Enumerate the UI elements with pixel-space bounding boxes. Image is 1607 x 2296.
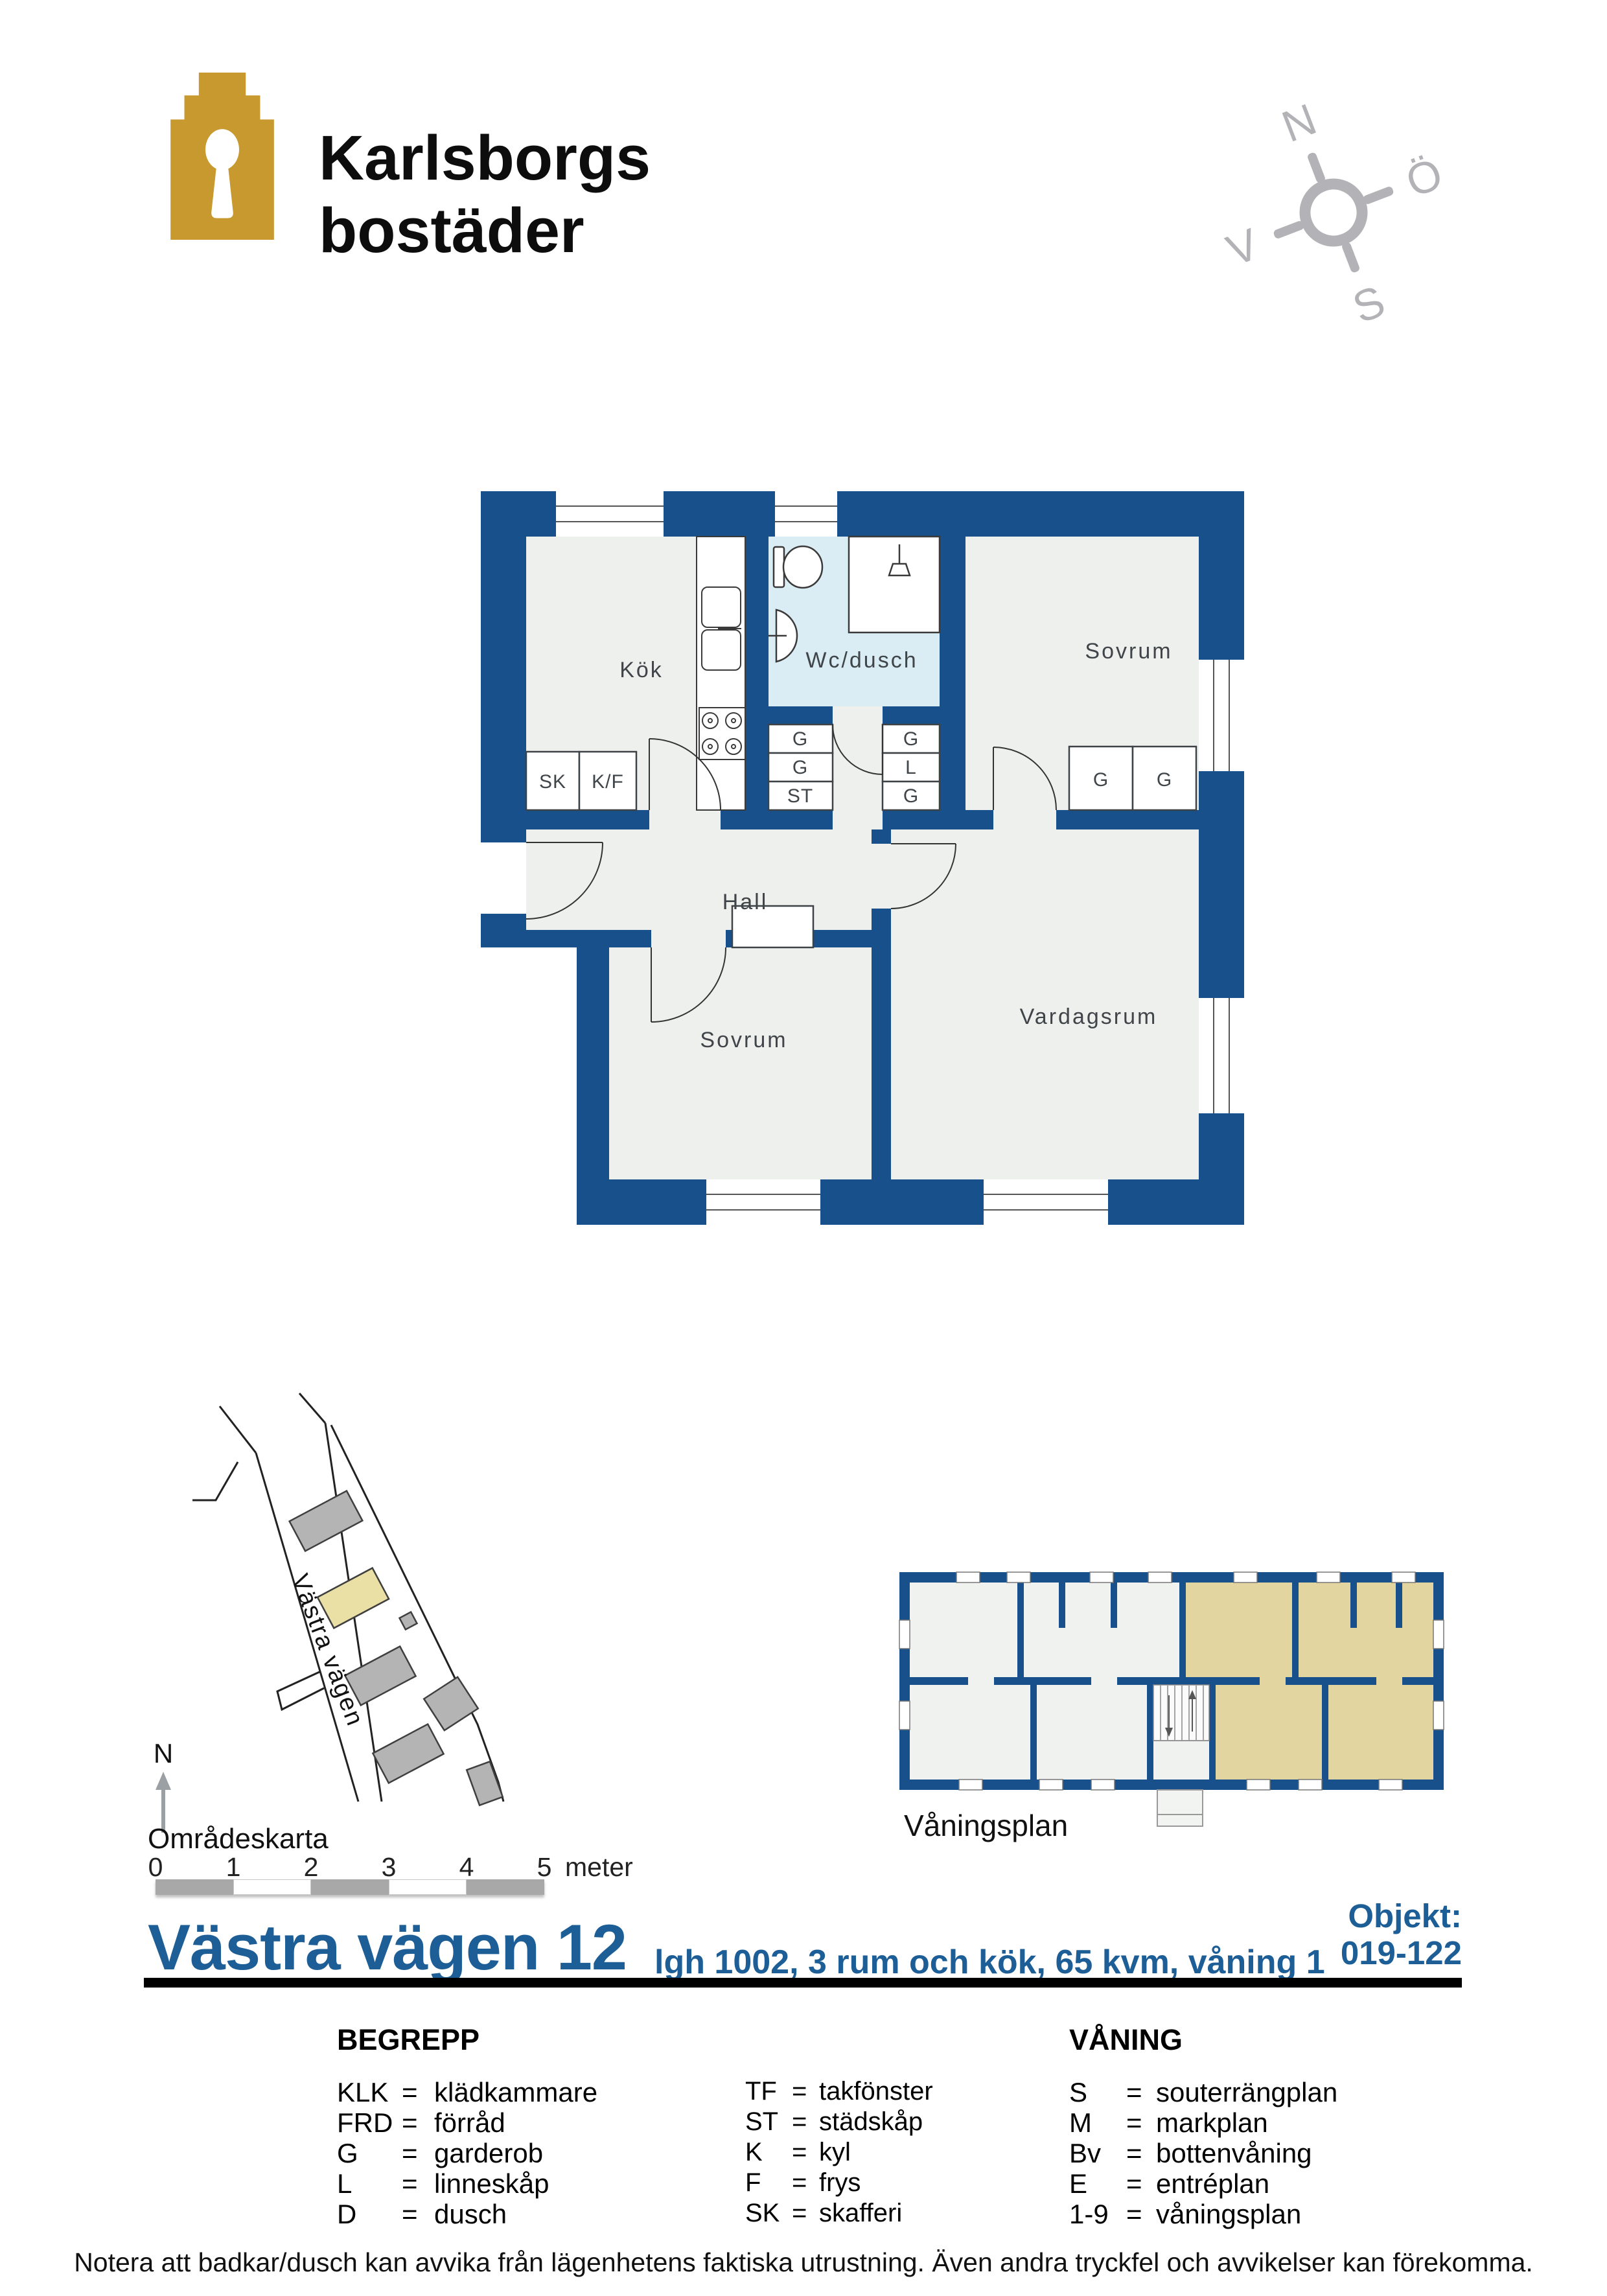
legend-abbr: S [1069, 2077, 1126, 2108]
counter [697, 537, 745, 810]
legend-abbr: G [337, 2138, 402, 2169]
shower-area [849, 537, 940, 632]
label-kitchen: Kök [619, 658, 664, 682]
label-g: G [792, 728, 808, 750]
legend-equals: = [402, 2168, 434, 2199]
opening [651, 930, 726, 947]
burner-dot [708, 719, 712, 723]
legend-term: markplan [1156, 2107, 1268, 2139]
legend-row: TF = takfönster [745, 2077, 933, 2107]
legend-term: förråd [434, 2107, 505, 2139]
legend-begrepp-header: BEGREPP [337, 2023, 480, 2057]
legend-row: Bv = bottenvåning [1069, 2138, 1337, 2168]
area-map: Västra vägen N Områdeskarta [130, 1387, 868, 1879]
wall-segment [883, 706, 940, 725]
label-hall: Hall [723, 890, 769, 914]
legend-abbr: M [1069, 2107, 1126, 2139]
road-line [277, 1672, 324, 1710]
legend-row: SK = skafferi [745, 2199, 933, 2229]
scalebar-unit: meter [565, 1852, 633, 1883]
label-l: L [905, 757, 917, 778]
legend-equals: = [402, 2138, 434, 2169]
legend-row: K = kyl [745, 2138, 933, 2168]
wall-segment [1286, 1677, 1376, 1685]
legend-term: klädkammare [434, 2077, 597, 2108]
scalebar [156, 1879, 544, 1895]
apartment-floor-plan: Kök Wc/dusch Sovrum Hall Sovrum Vardagsr… [481, 491, 1244, 1225]
legend-begrepp-col1: KLK = klädkammare FRD = förråd G = garde… [337, 2077, 597, 2229]
legend-term: dusch [434, 2199, 507, 2230]
legend-row: ST = städskåp [745, 2107, 933, 2138]
window [706, 1179, 820, 1225]
map-building [399, 1612, 417, 1629]
shower-head-icon [889, 564, 910, 575]
kitchen-counter [697, 537, 745, 810]
wall-segment [526, 930, 651, 947]
legend-abbr: ST [745, 2107, 792, 2137]
wall-segment [940, 537, 965, 829]
north-arrow-head [156, 1772, 171, 1790]
legend-equals: = [792, 2077, 819, 2106]
legend-term: bottenvåning [1156, 2138, 1312, 2169]
scalebar-segment [389, 1879, 467, 1895]
wall-segment [1350, 1583, 1357, 1628]
opening [872, 844, 891, 909]
map-caption: Områdeskarta [148, 1823, 329, 1855]
legend-abbr: F [745, 2168, 792, 2197]
label-g: G [792, 757, 808, 778]
legend-term: entréplan [1156, 2168, 1269, 2199]
legend-abbr: E [1069, 2168, 1126, 2199]
label-kf: K/F [592, 771, 624, 793]
legend-term: linneskåp [434, 2168, 549, 2199]
window [775, 491, 837, 537]
compass-spoke-s [1341, 241, 1360, 273]
legend-equals: = [1126, 2077, 1156, 2108]
opening [833, 706, 883, 725]
legend-equals: = [1126, 2199, 1156, 2230]
map-building [424, 1677, 478, 1730]
label-bedroom-low: Sovrum [700, 1028, 787, 1052]
wall-segment [1056, 810, 1199, 829]
legend-term: souterrängplan [1156, 2077, 1337, 2108]
object-id-block: Objekt: 019-122 [1341, 1897, 1462, 1971]
label-sk: SK [539, 771, 566, 793]
legend-abbr: K [745, 2138, 792, 2167]
compass-label-south: S [1347, 276, 1392, 332]
stair-flights [1153, 1685, 1209, 1741]
scalebar-tick: 0 [117, 1852, 194, 1883]
legend-term: skafferi [819, 2199, 902, 2228]
wall-segment [1179, 1583, 1186, 1677]
legend-row: 1-9 = våningsplan [1069, 2199, 1337, 2229]
wall-segment [526, 810, 649, 829]
divider-rule [144, 1978, 1462, 1988]
legend-row: D = dusch [337, 2199, 597, 2229]
legend-begrepp-col2: TF = takfönster ST = städskåp K = kyl F … [745, 2077, 933, 2229]
compass-label-north: N [1275, 95, 1323, 152]
window [984, 1179, 1108, 1225]
label-g: G [1157, 769, 1172, 791]
legend-row: L = linneskåp [337, 2168, 597, 2199]
wall-segment [872, 909, 891, 1225]
legend-equals: = [1126, 2107, 1156, 2139]
legend-abbr: TF [745, 2077, 792, 2106]
legend-term: städskåp [819, 2107, 923, 2137]
wall-segment [1117, 1677, 1260, 1685]
legend-equals: = [1126, 2168, 1156, 2199]
scalebar-tick: 3 [350, 1852, 428, 1883]
wall-segment [1292, 1583, 1299, 1677]
toilet-tank [774, 547, 784, 587]
scalebar-ticks: 012345 [117, 1852, 583, 1883]
wall-segment [872, 829, 891, 844]
legend-equals: = [402, 2199, 434, 2230]
wall-segment [883, 810, 993, 829]
legend-equals: = [792, 2138, 819, 2167]
legend-vaning-header: VÅNING [1069, 2023, 1183, 2057]
legend-equals: = [792, 2168, 819, 2197]
scalebar-segment [467, 1879, 544, 1895]
road-line [299, 1393, 325, 1423]
label-g: G [903, 785, 919, 807]
scalebar-segment [311, 1879, 389, 1895]
page-title-address: Västra vägen 12 [148, 1910, 627, 1984]
legend-equals: = [792, 2199, 819, 2228]
room-bedroom-low [609, 947, 872, 1179]
label-g: G [903, 728, 919, 750]
compass-spoke-n [1306, 152, 1326, 184]
burner-dot [732, 719, 735, 723]
sink-basin [702, 587, 741, 627]
wall-segment [1396, 1583, 1402, 1628]
legend-term: frys [819, 2168, 861, 2197]
object-number: 019-122 [1341, 1934, 1462, 1971]
compass-rose-icon: N Ö S V [1197, 76, 1470, 349]
legend-row: G = garderob [337, 2138, 597, 2168]
label-living: Vardagsrum [1020, 1004, 1158, 1029]
legend-abbr: Bv [1069, 2138, 1126, 2169]
wall-segment [1017, 1583, 1024, 1677]
burner-dot [708, 745, 712, 748]
wall-segment [1402, 1677, 1433, 1685]
compass-spoke-w [1273, 220, 1305, 239]
wall-segment [1059, 1583, 1065, 1628]
road-line [220, 1406, 256, 1453]
legend-equals: = [792, 2107, 819, 2137]
map-building [373, 1724, 443, 1783]
scalebar-segment [156, 1879, 233, 1895]
legend-abbr: KLK [337, 2077, 402, 2108]
compass-ring [1297, 176, 1370, 249]
wall-segment [1030, 1685, 1037, 1780]
legend-row: F = frys [745, 2168, 933, 2199]
map-north-label: N [154, 1738, 173, 1768]
page-title-details: lgh 1002, 3 rum och kök, 65 kvm, våning … [654, 1943, 1325, 1982]
wall-segment [1209, 1685, 1216, 1780]
scalebar-tick: 2 [272, 1852, 350, 1883]
label-bedroom-top: Sovrum [1085, 639, 1172, 664]
entrance-porch [1157, 1790, 1203, 1826]
sink-basin [702, 630, 741, 670]
brand-name: Karlsborgs bostäder [319, 122, 651, 267]
legend-abbr: SK [745, 2199, 792, 2228]
building-overview-plan [897, 1568, 1454, 1847]
label-g: G [1093, 769, 1109, 791]
scalebar-tick: 1 [194, 1852, 272, 1883]
legend-row: FRD = förråd [337, 2107, 597, 2138]
wall-segment [769, 706, 833, 725]
label-wc: Wc/dusch [805, 648, 918, 673]
window [556, 491, 664, 537]
logo-keyhole-icon [162, 73, 283, 240]
map-building [467, 1761, 503, 1805]
brand-line2: bostäder [319, 194, 651, 267]
legend-row: S = souterrängplan [1069, 2077, 1337, 2107]
legend-row: M = markplan [1069, 2107, 1337, 2138]
burner-dot [732, 745, 735, 748]
legend-vaning-col: S = souterrängplan M = markplan Bv = bot… [1069, 2077, 1337, 2229]
legend-term: takfönster [819, 2077, 933, 2106]
legend-term: våningsplan [1156, 2199, 1301, 2230]
overview-caption: Våningsplan [904, 1808, 1068, 1843]
scalebar-segment [233, 1879, 311, 1895]
legend-term: garderob [434, 2138, 543, 2169]
legend-abbr: FRD [337, 2107, 402, 2139]
compass-label-east: Ö [1400, 148, 1450, 207]
legend-equals: = [402, 2077, 434, 2108]
object-label: Objekt: [1341, 1897, 1462, 1934]
map-building [290, 1491, 363, 1551]
scalebar-tick: 4 [428, 1852, 505, 1883]
legend-row: KLK = klädkammare [337, 2077, 597, 2107]
legend-row: E = entréplan [1069, 2168, 1337, 2199]
toilet-bowl [783, 546, 822, 588]
legend-abbr: 1-9 [1069, 2199, 1126, 2230]
wall-segment [910, 1677, 968, 1685]
legend-abbr: D [337, 2199, 402, 2230]
room-hall [526, 829, 872, 930]
legend-equals: = [402, 2107, 434, 2139]
opening [833, 810, 883, 829]
wall-segment [994, 1677, 1091, 1685]
compass-spoke-e [1362, 185, 1394, 205]
legend-abbr: L [337, 2168, 402, 2199]
compass-label-west: V [1220, 219, 1266, 275]
legend-equals: = [1126, 2138, 1156, 2169]
wall-segment [1111, 1583, 1117, 1628]
window [1199, 998, 1244, 1113]
window [1199, 660, 1244, 771]
entrance-opening [481, 842, 526, 914]
road-line [192, 1462, 238, 1500]
legend-term: kyl [819, 2138, 851, 2167]
floorplan-document-page: Karlsborgs bostäder N Ö S V [0, 0, 1607, 2296]
wall-segment [1322, 1685, 1328, 1780]
opening [649, 810, 721, 829]
label-st: ST [787, 785, 813, 807]
footer-disclaimer: Notera att badkar/dusch kan avvika från … [0, 2247, 1607, 2278]
opening [993, 810, 1056, 829]
compass-group: N Ö S V [1197, 76, 1470, 349]
wall-segment [745, 537, 769, 810]
wall-segment [721, 810, 833, 829]
wall-segment [1147, 1685, 1153, 1780]
brand-line1: Karlsborgs [319, 122, 651, 194]
